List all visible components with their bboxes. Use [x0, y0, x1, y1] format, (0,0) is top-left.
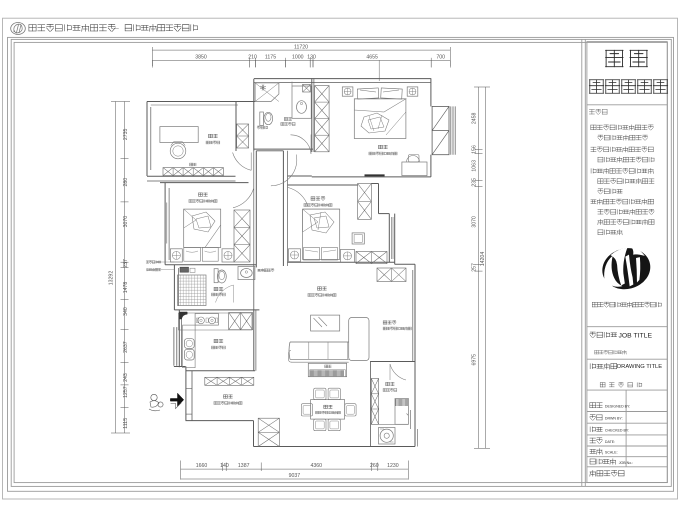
svg-text:DATE:: DATE: [605, 440, 615, 444]
svg-text:DESIGNED BY:: DESIGNED BY: [605, 405, 630, 409]
svg-text:257: 257 [471, 263, 477, 272]
svg-text:11720: 11720 [294, 44, 308, 50]
svg-text:JOB TITLE: JOB TITLE [619, 332, 653, 339]
svg-text:340: 340 [123, 307, 129, 316]
svg-text:1257: 1257 [123, 386, 129, 398]
svg-text:2458: 2458 [471, 113, 477, 125]
svg-text:140: 140 [220, 463, 229, 469]
svg-text:1387: 1387 [238, 463, 250, 469]
svg-text:260: 260 [370, 463, 379, 469]
svg-text:DRAWING TITLE: DRAWING TITLE [617, 364, 662, 370]
svg-text:280: 280 [123, 178, 129, 187]
svg-text:700: 700 [436, 55, 445, 61]
svg-text:4655: 4655 [366, 55, 378, 61]
svg-text:4360: 4360 [311, 463, 323, 469]
svg-text:1000: 1000 [292, 55, 304, 61]
svg-text:1230: 1230 [387, 463, 399, 469]
svg-text:13292: 13292 [109, 271, 115, 286]
svg-text:237: 237 [123, 259, 129, 268]
svg-text:3850: 3850 [195, 55, 207, 61]
svg-text:JOB No.:: JOB No.: [619, 461, 634, 465]
svg-text:6975: 6975 [471, 354, 477, 366]
svg-text:210: 210 [248, 55, 257, 61]
svg-text:3070: 3070 [471, 216, 477, 228]
svg-text:CHECKED BY:: CHECKED BY: [605, 429, 629, 433]
svg-text:SCALE:: SCALE: [605, 451, 618, 455]
svg-text:243: 243 [123, 373, 129, 382]
svg-text:DRWN BY:: DRWN BY: [605, 417, 623, 421]
svg-text:9037: 9037 [289, 473, 301, 479]
svg-text:1478: 1478 [123, 282, 129, 294]
svg-text:3070: 3070 [123, 216, 129, 228]
svg-text:2735: 2735 [123, 129, 129, 141]
svg-text:----: ---- [112, 26, 119, 32]
svg-text:156: 156 [471, 145, 477, 154]
svg-text:1660: 1660 [196, 463, 208, 469]
svg-text:235: 235 [471, 178, 477, 187]
svg-text:2637: 2637 [123, 341, 129, 353]
svg-text:14204: 14204 [480, 252, 486, 267]
svg-text:1175: 1175 [265, 55, 276, 61]
svg-text:1115: 1115 [123, 418, 129, 429]
svg-text:1063: 1063 [471, 160, 477, 172]
svg-text:130: 130 [307, 55, 316, 61]
